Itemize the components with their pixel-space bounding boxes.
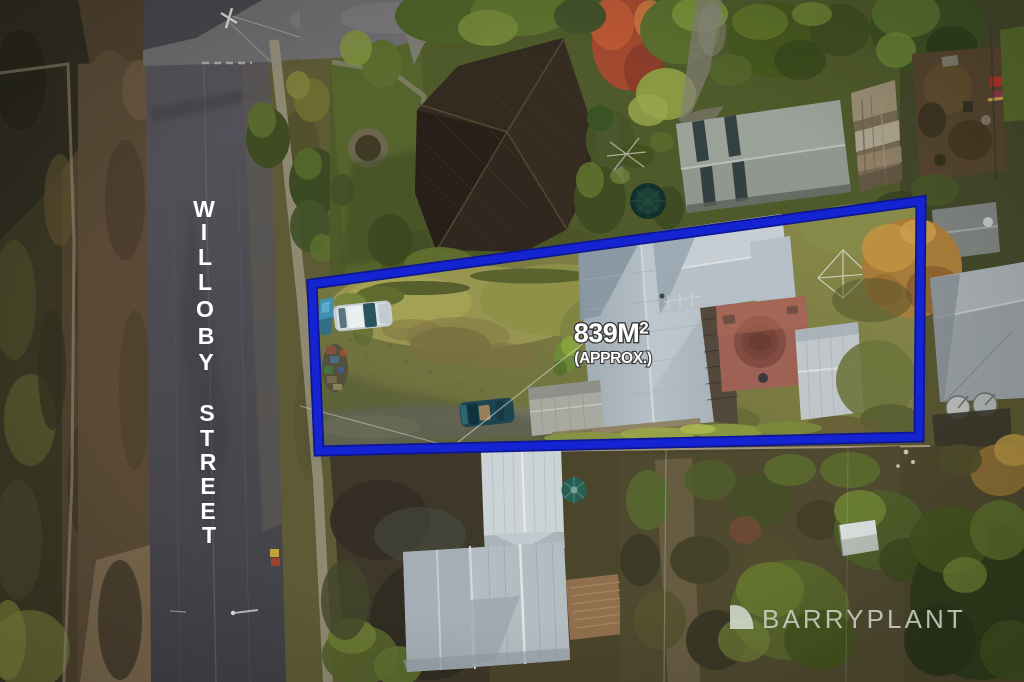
svg-text:R: R <box>200 449 217 475</box>
svg-text:(APPROX.): (APPROX.) <box>574 350 652 367</box>
svg-text:O: O <box>196 296 214 322</box>
svg-text:839M2: 839M2 <box>574 318 649 348</box>
svg-text:BARRYPLANT: BARRYPLANT <box>762 604 966 634</box>
svg-text:L: L <box>198 244 212 270</box>
svg-text:Y: Y <box>198 349 213 375</box>
svg-text:B: B <box>198 323 215 349</box>
svg-text:E: E <box>200 498 215 524</box>
svg-text:I: I <box>201 219 207 245</box>
svg-text:T: T <box>202 522 216 548</box>
svg-text:S: S <box>199 400 214 426</box>
svg-text:T: T <box>200 425 214 451</box>
svg-text:L: L <box>198 269 212 295</box>
svg-text:E: E <box>200 473 215 499</box>
